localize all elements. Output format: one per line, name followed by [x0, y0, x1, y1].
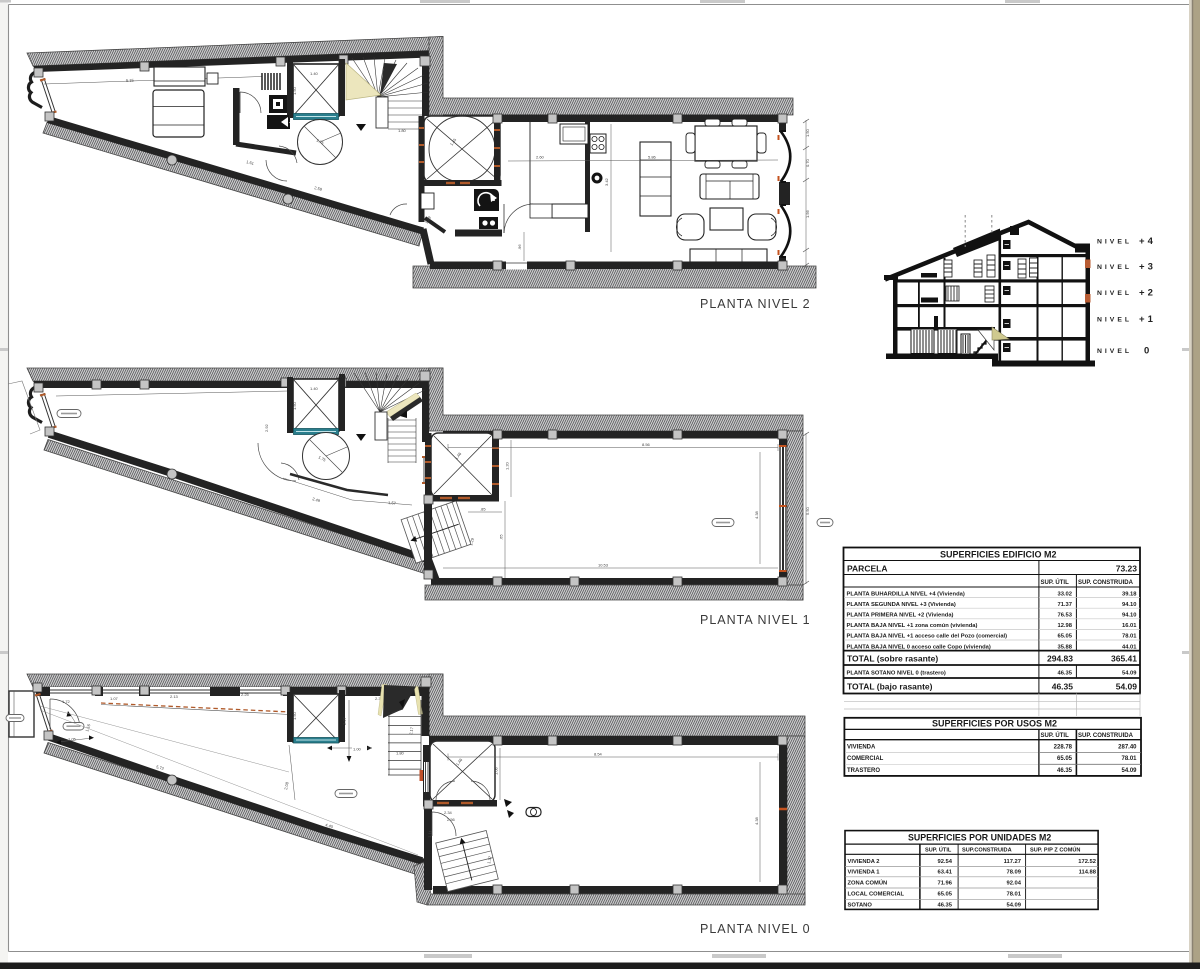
- svg-text:VIVIENDA 2: VIVIENDA 2: [848, 859, 880, 865]
- svg-text:54.09: 54.09: [1122, 671, 1137, 677]
- svg-text:54.09: 54.09: [1006, 903, 1021, 909]
- svg-text:SUP. CONSTRUIDA: SUP. CONSTRUIDA: [1078, 580, 1134, 586]
- svg-text:.96: .96: [517, 244, 522, 250]
- svg-text:1.05: 1.05: [68, 737, 77, 742]
- svg-text:54.09: 54.09: [1116, 682, 1138, 692]
- svg-text:12.98: 12.98: [1057, 623, 1072, 629]
- svg-text:2.25: 2.25: [241, 692, 250, 697]
- svg-text:1.72: 1.72: [62, 699, 71, 704]
- svg-text:73.23: 73.23: [1116, 564, 1138, 574]
- svg-text:3.42: 3.42: [604, 177, 609, 186]
- svg-text:NIVEL+3: NIVEL+3: [1097, 262, 1156, 273]
- svg-text:2.92: 2.92: [264, 423, 269, 432]
- svg-text:94.10: 94.10: [1122, 613, 1137, 619]
- svg-text:4.38: 4.38: [754, 816, 759, 825]
- svg-text:8.54: 8.54: [594, 752, 603, 757]
- svg-text:172.52: 172.52: [1078, 859, 1096, 865]
- svg-text:78.01: 78.01: [1121, 756, 1137, 762]
- svg-text:SUP. ÚTIL: SUP. ÚTIL: [925, 847, 952, 854]
- svg-text:35.88: 35.88: [1057, 644, 1072, 650]
- svg-text:TOTAL (sobre rasante): TOTAL (sobre rasante): [847, 654, 938, 664]
- svg-text:46.35: 46.35: [1052, 682, 1074, 692]
- svg-text:1.07: 1.07: [110, 696, 119, 701]
- svg-text:2.56: 2.56: [447, 817, 456, 822]
- svg-text:54.09: 54.09: [1121, 768, 1137, 774]
- svg-text:PLANTA BAJA NIVEL +1 acceso c: PLANTA BAJA NIVEL +1 acceso calle del Po…: [847, 634, 1008, 640]
- svg-text:1.06: 1.06: [494, 766, 499, 775]
- svg-text:76.53: 76.53: [1057, 613, 1072, 619]
- svg-text:TRASTERO: TRASTERO: [847, 768, 880, 774]
- svg-text:1.56: 1.56: [805, 209, 810, 218]
- svg-text:SOTANO: SOTANO: [848, 903, 873, 909]
- svg-text:2.60: 2.60: [536, 155, 545, 160]
- svg-text:1.50: 1.50: [805, 128, 810, 137]
- svg-text:0.70: 0.70: [805, 158, 810, 167]
- svg-text:1.11: 1.11: [427, 829, 433, 838]
- svg-text:46.35: 46.35: [1057, 768, 1073, 774]
- svg-text:228.78: 228.78: [1054, 745, 1073, 751]
- svg-text:NIVEL+1: NIVEL+1: [1097, 314, 1156, 325]
- svg-text:1.80: 1.80: [398, 128, 407, 133]
- svg-text:365.41: 365.41: [1111, 654, 1137, 664]
- svg-text:8.56: 8.56: [642, 442, 651, 447]
- svg-text:294.83: 294.83: [1047, 654, 1073, 664]
- svg-text:117.27: 117.27: [1004, 859, 1021, 865]
- svg-text:PLANTA SOTANO NIVEL 0 (traste: PLANTA SOTANO NIVEL 0 (trastero): [847, 671, 946, 677]
- svg-text:SUPERFICIES EDIFICIO M2: SUPERFICIES EDIFICIO M2: [940, 550, 1057, 560]
- svg-text:1.50: 1.50: [292, 711, 297, 720]
- svg-text:5.15: 5.15: [126, 78, 135, 83]
- svg-text:VIVIENDA: VIVIENDA: [847, 745, 876, 751]
- svg-text:NIVEL0: NIVEL0: [1097, 346, 1152, 357]
- svg-text:33.02: 33.02: [1057, 591, 1072, 597]
- svg-text:5.86: 5.86: [648, 155, 657, 160]
- svg-text:1.50: 1.50: [292, 86, 297, 95]
- svg-text:78.01: 78.01: [1006, 892, 1021, 898]
- svg-text:5.50: 5.50: [805, 506, 810, 515]
- svg-text:PLANTA SEGUNDA NIVEL +3 (Vivie: PLANTA SEGUNDA NIVEL +3 (Vivienda): [847, 602, 956, 608]
- svg-text:PLANTA BUHARDILLA NIVEL +4 (Vi: PLANTA BUHARDILLA NIVEL +4 (Vivienda): [847, 591, 965, 597]
- svg-text:NIVEL+2: NIVEL+2: [1097, 288, 1156, 299]
- svg-text:1.40: 1.40: [310, 71, 319, 76]
- svg-text:PLANTA NIVEL 2: PLANTA NIVEL 2: [700, 297, 811, 311]
- svg-text:65.05: 65.05: [937, 892, 952, 898]
- svg-text:PARCELA: PARCELA: [847, 564, 887, 574]
- svg-text:46.35: 46.35: [1057, 671, 1072, 677]
- svg-text:.85: .85: [480, 507, 486, 512]
- svg-text:2.34: 2.34: [444, 810, 453, 815]
- svg-text:SUP. CONSTRUIDA: SUP. CONSTRUIDA: [1078, 733, 1134, 739]
- svg-text:LOCAL COMERCIAL: LOCAL COMERCIAL: [848, 892, 905, 898]
- svg-text:1.00: 1.00: [353, 747, 362, 752]
- svg-text:COMERCIAL: COMERCIAL: [847, 756, 884, 762]
- svg-text:TOTAL (bajo rasante): TOTAL (bajo rasante): [847, 682, 933, 692]
- svg-text:1.40: 1.40: [310, 386, 319, 391]
- svg-text:VIVIENDA 1: VIVIENDA 1: [848, 869, 881, 875]
- svg-text:SUPERFICIES POR UNIDADES M2: SUPERFICIES POR UNIDADES M2: [908, 833, 1051, 843]
- svg-text:287.40: 287.40: [1118, 745, 1137, 751]
- svg-text:SUP. ÚTIL: SUP. ÚTIL: [1041, 579, 1070, 586]
- svg-text:ZONA COMÚN: ZONA COMÚN: [848, 880, 888, 887]
- svg-text:78.09: 78.09: [1006, 869, 1021, 875]
- svg-text:2.13: 2.13: [170, 694, 179, 699]
- svg-text:1.57: 1.57: [388, 500, 397, 506]
- svg-text:PLANTA NIVEL 1: PLANTA NIVEL 1: [700, 613, 811, 627]
- svg-text:SUP. P/P Z COMÚN: SUP. P/P Z COMÚN: [1030, 847, 1080, 854]
- svg-text:44.01: 44.01: [1122, 644, 1137, 650]
- svg-text:.65: .65: [499, 534, 504, 540]
- svg-text:114.88: 114.88: [1079, 869, 1097, 875]
- svg-text:16.01: 16.01: [1122, 623, 1137, 629]
- svg-text:PLANTA BAJA NIVEL +1 zona com: PLANTA BAJA NIVEL +1 zona común (viviend…: [847, 623, 978, 629]
- svg-text:1.50: 1.50: [292, 401, 297, 410]
- svg-text:PLANTA PRIMERA NIVEL +2 (Vivie: PLANTA PRIMERA NIVEL +2 (Vivienda): [847, 613, 954, 619]
- svg-text:1.20: 1.20: [505, 461, 510, 470]
- svg-text:65.05: 65.05: [1057, 634, 1072, 640]
- svg-text:78.01: 78.01: [1122, 634, 1137, 640]
- svg-text:4.38: 4.38: [754, 510, 759, 519]
- svg-text:94.10: 94.10: [1122, 602, 1137, 608]
- svg-text:92.54: 92.54: [937, 859, 952, 865]
- svg-text:10.53: 10.53: [598, 563, 609, 568]
- svg-text:92.04: 92.04: [1006, 881, 1021, 887]
- svg-text:63.41: 63.41: [937, 869, 952, 875]
- svg-text:1.80: 1.80: [396, 751, 405, 756]
- svg-text:SUP. ÚTIL: SUP. ÚTIL: [1041, 732, 1070, 739]
- svg-text:71.37: 71.37: [1057, 602, 1072, 608]
- svg-text:46.35: 46.35: [937, 903, 952, 909]
- svg-text:2.27: 2.27: [342, 716, 347, 725]
- svg-text:65.05: 65.05: [1057, 756, 1073, 762]
- svg-text:PLANTA NIVEL 0: PLANTA NIVEL 0: [700, 922, 811, 936]
- svg-text:SUP.CONSTRUIDA: SUP.CONSTRUIDA: [962, 848, 1012, 854]
- svg-text:SUPERFICIES POR USOS M2: SUPERFICIES POR USOS M2: [932, 719, 1057, 729]
- svg-text:39.18: 39.18: [1122, 591, 1137, 597]
- svg-text:NIVEL+4: NIVEL+4: [1097, 236, 1156, 247]
- svg-text:PLANTA BAJA NIVEL 0 acceso cal: PLANTA BAJA NIVEL 0 acceso calle Copo (v…: [847, 644, 991, 650]
- svg-text:71.96: 71.96: [937, 881, 952, 887]
